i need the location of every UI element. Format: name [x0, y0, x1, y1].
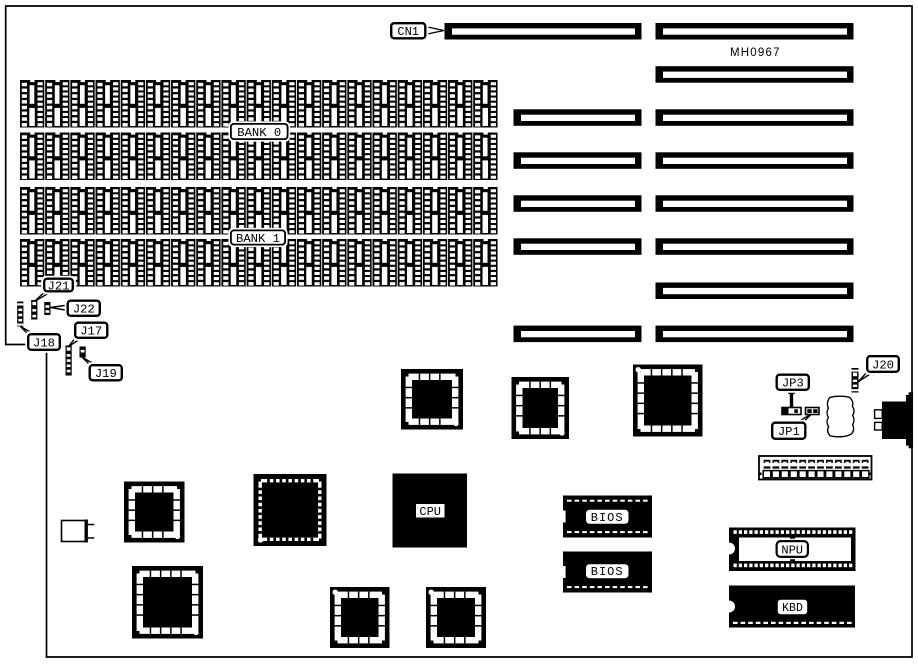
svg-text:J21: J21	[48, 279, 70, 293]
svg-text:JP3: JP3	[782, 377, 804, 391]
svg-text:J22: J22	[73, 303, 95, 317]
svg-text:BIOS: BIOS	[591, 565, 624, 579]
svg-text:J20: J20	[872, 358, 894, 372]
svg-text:MH0967: MH0967	[730, 47, 781, 59]
svg-text:J18: J18	[33, 336, 55, 350]
svg-text:CN1: CN1	[397, 25, 419, 39]
svg-text:BANK 1: BANK 1	[236, 232, 280, 246]
svg-text:KBD: KBD	[782, 602, 803, 615]
svg-text:J17: J17	[80, 325, 102, 339]
svg-text:BANK 0: BANK 0	[237, 126, 281, 140]
svg-text:BIOS: BIOS	[591, 511, 624, 525]
svg-text:JP1: JP1	[778, 425, 800, 439]
svg-text:CPU: CPU	[419, 505, 441, 519]
svg-text:NPU: NPU	[781, 543, 803, 557]
svg-text:J19: J19	[95, 367, 117, 381]
